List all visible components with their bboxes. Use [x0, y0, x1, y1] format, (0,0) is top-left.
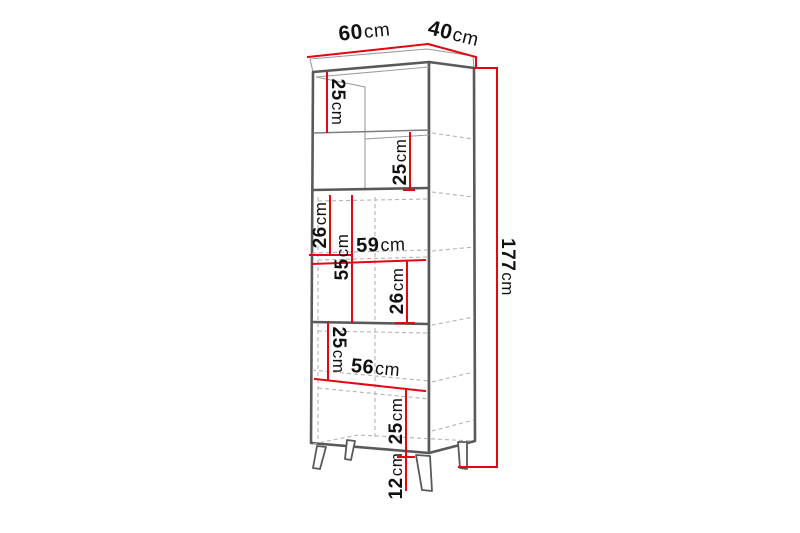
label-middle-height: 55cm: [332, 234, 353, 281]
label-upper-section-1: 25cm: [327, 79, 348, 126]
leg-back-right: [458, 442, 467, 469]
cabinet-dimension-drawing: 60cm 40cm 177cm 25cm 25cm 26cm 55cm 59cm…: [0, 0, 800, 533]
label-middle-left: 26cm: [310, 202, 331, 249]
leg-front-left: [313, 446, 326, 469]
dimension-diagram: 60cm 40cm 177cm 25cm 25cm 26cm 55cm 59cm…: [0, 0, 800, 533]
label-lower-left: 25cm: [328, 327, 349, 374]
label-total-height: 177cm: [497, 238, 518, 296]
label-interior-width-lower: 56cm: [350, 355, 401, 381]
label-interior-width-middle: 59cm: [356, 233, 406, 257]
leg-back-left: [345, 440, 355, 460]
label-lower-right: 25cm: [386, 398, 407, 445]
leg-front-right: [416, 455, 432, 491]
cabinet-side-face: [429, 62, 475, 453]
label-leg-height: 12cm: [386, 453, 407, 500]
label-top-width: 60cm: [337, 17, 391, 45]
label-middle-right: 26cm: [387, 268, 408, 315]
label-upper-section-2: 25cm: [390, 139, 411, 186]
